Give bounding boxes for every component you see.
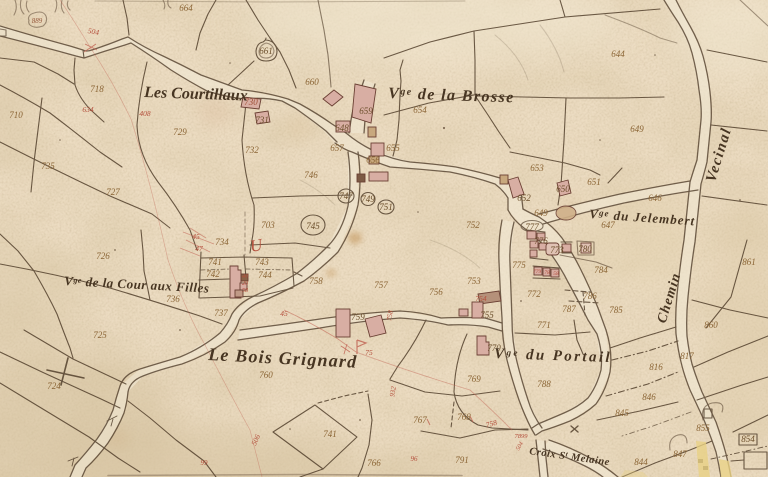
svg-text:845: 845 xyxy=(615,408,629,418)
svg-text:753: 753 xyxy=(467,276,481,286)
svg-text:772: 772 xyxy=(527,289,541,299)
svg-text:47: 47 xyxy=(195,244,203,253)
svg-text:760: 760 xyxy=(259,370,273,380)
svg-text:742: 742 xyxy=(206,269,220,279)
svg-text:847: 847 xyxy=(673,449,687,459)
svg-text:844: 844 xyxy=(634,457,648,467)
svg-text:726: 726 xyxy=(96,251,110,261)
svg-text:725: 725 xyxy=(93,330,107,340)
svg-text:741: 741 xyxy=(208,257,222,267)
svg-text:769: 769 xyxy=(467,374,481,384)
svg-text:634: 634 xyxy=(82,105,94,114)
svg-text:657: 657 xyxy=(330,143,344,153)
svg-text:816: 816 xyxy=(649,362,663,372)
svg-text:785: 785 xyxy=(609,305,623,315)
svg-text:889: 889 xyxy=(32,17,43,25)
svg-text:654: 654 xyxy=(413,105,427,115)
svg-text:99: 99 xyxy=(201,459,209,467)
svg-text:734: 734 xyxy=(215,237,229,247)
svg-text:776: 776 xyxy=(534,236,548,246)
svg-text:749: 749 xyxy=(361,194,375,204)
svg-text:729: 729 xyxy=(173,127,187,137)
svg-text:646: 646 xyxy=(648,193,662,203)
svg-text:718: 718 xyxy=(90,84,104,94)
svg-text:767: 767 xyxy=(413,415,427,425)
svg-text:661: 661 xyxy=(259,46,273,56)
svg-text:649: 649 xyxy=(534,208,548,218)
svg-text:756: 756 xyxy=(429,287,443,297)
svg-text:659: 659 xyxy=(359,106,373,116)
svg-text:791: 791 xyxy=(455,455,469,465)
svg-text:7899: 7899 xyxy=(515,433,529,440)
svg-text:766: 766 xyxy=(367,458,381,468)
svg-text:752: 752 xyxy=(466,220,480,230)
svg-text:758: 758 xyxy=(309,276,323,286)
svg-text:58: 58 xyxy=(242,288,248,294)
svg-text:747: 747 xyxy=(339,191,353,201)
svg-text:652: 652 xyxy=(517,193,531,203)
svg-text:787: 787 xyxy=(562,304,576,314)
svg-text:96: 96 xyxy=(411,455,419,463)
svg-text:703: 703 xyxy=(261,220,275,230)
svg-text:724: 724 xyxy=(47,381,61,391)
svg-text:771: 771 xyxy=(537,320,551,330)
svg-text:743: 743 xyxy=(255,257,269,267)
svg-text:45: 45 xyxy=(192,232,200,241)
svg-text:735: 735 xyxy=(41,161,55,171)
svg-text:861: 861 xyxy=(742,257,756,267)
svg-text:660: 660 xyxy=(305,77,319,87)
svg-text:710: 710 xyxy=(9,110,23,120)
svg-text:777: 777 xyxy=(525,222,539,232)
svg-text:655: 655 xyxy=(386,143,400,153)
svg-text:736: 736 xyxy=(166,294,180,304)
svg-text:40: 40 xyxy=(242,273,248,280)
svg-text:727: 727 xyxy=(106,187,120,197)
svg-text:78: 78 xyxy=(544,270,550,276)
svg-text:656: 656 xyxy=(366,155,380,165)
svg-text:754: 754 xyxy=(475,294,487,303)
svg-text:737: 737 xyxy=(214,308,228,318)
svg-text:649: 649 xyxy=(630,124,644,134)
svg-text:648: 648 xyxy=(335,123,349,133)
svg-text:779: 779 xyxy=(533,269,542,275)
svg-text:732: 732 xyxy=(245,145,259,155)
svg-text:653: 653 xyxy=(530,163,544,173)
svg-text:786: 786 xyxy=(583,291,597,301)
svg-text:773: 773 xyxy=(550,245,564,255)
svg-text:408: 408 xyxy=(139,109,151,118)
svg-text:744: 744 xyxy=(258,270,272,280)
svg-text:855: 855 xyxy=(696,423,710,433)
svg-text:745: 745 xyxy=(306,221,320,231)
svg-text:755: 755 xyxy=(480,310,494,320)
svg-text:860: 860 xyxy=(704,320,718,330)
svg-text:757: 757 xyxy=(374,280,388,290)
svg-text:20: 20 xyxy=(242,281,248,287)
svg-text:644: 644 xyxy=(611,49,625,59)
svg-text:780: 780 xyxy=(578,244,592,254)
svg-text:651: 651 xyxy=(587,177,601,187)
svg-text:75: 75 xyxy=(365,348,373,357)
svg-text:650: 650 xyxy=(556,184,570,194)
svg-text:759: 759 xyxy=(351,312,365,322)
svg-text:768: 768 xyxy=(457,412,471,422)
svg-text:854: 854 xyxy=(741,434,755,444)
svg-text:788: 788 xyxy=(537,379,551,389)
svg-text:751: 751 xyxy=(379,202,393,212)
svg-text:775: 775 xyxy=(512,260,526,270)
svg-text:58: 58 xyxy=(553,271,559,277)
svg-text:817: 817 xyxy=(680,351,694,361)
svg-text:741: 741 xyxy=(323,429,337,439)
svg-text:746: 746 xyxy=(304,170,318,180)
svg-text:784: 784 xyxy=(594,265,608,275)
svg-text:664: 664 xyxy=(179,3,193,13)
svg-text:846: 846 xyxy=(642,392,656,402)
svg-text:45: 45 xyxy=(280,309,288,318)
svg-text:731: 731 xyxy=(255,115,269,125)
